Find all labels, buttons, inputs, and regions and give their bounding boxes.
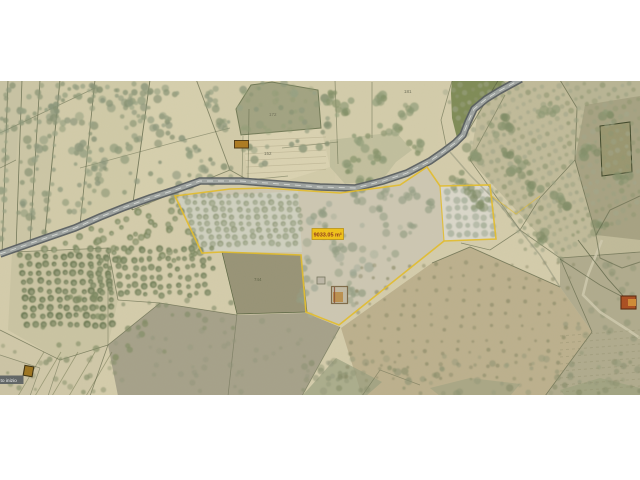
svg-text:9033.05 m²: 9033.05 m² — [314, 232, 342, 239]
svg-text:to inizio: to inizio — [1, 378, 18, 384]
